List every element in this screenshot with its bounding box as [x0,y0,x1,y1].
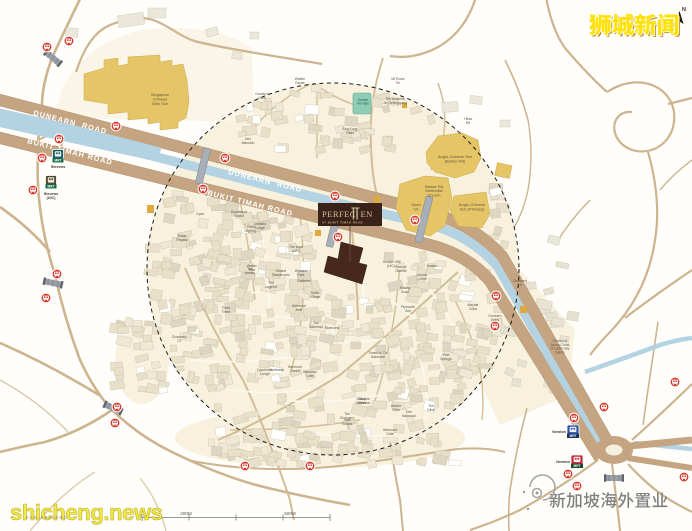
svg-text:Avalon: Avalon [427,264,437,268]
svg-text:SingaporeChineseGirls Sch: SingaporeChineseGirls Sch [151,92,170,106]
svg-text:WattenEstate: WattenEstate [295,77,306,85]
svg-text:TheOlive: TheOlive [427,404,435,412]
svg-text:Cyan: Cyan [196,212,204,216]
svg-text:Anglo-ChineseSch (Primary): Anglo-ChineseSch (Primary) [459,202,486,212]
svg-text:Stevens: Stevens [51,165,66,169]
svg-text:GardenHm Apts: GardenHm Apts [357,98,369,106]
svg-text:FirenzeGrande: FirenzeGrande [395,265,406,273]
svg-text:Newton: Newton [552,430,566,434]
svg-text:Newton: Newton [556,460,570,464]
svg-text:K C B - S E A L E R D: K C B - S E A L E R D [26,515,67,520]
svg-text:RobinRegalia: RobinRegalia [176,234,188,242]
svg-text:Galleries: Galleries [297,279,311,283]
svg-text:PERFEC: PERFEC [322,209,356,219]
svg-text:LincolnLodge: LincolnLodge [417,273,428,281]
svg-text:The AscentiaJln Gelenggang: The AscentiaJln Gelenggang [383,97,407,105]
svg-text:ChalseaLodge: ChalseaLodge [254,222,267,230]
svg-text:MRT: MRT [574,464,581,468]
svg-text:EN: EN [361,209,374,219]
svg-text:MRT: MRT [570,434,577,438]
svg-text:Montview: Montview [325,326,340,330]
svg-text:SarkiesMansion: SarkiesMansion [358,397,371,405]
svg-text:200M: 200M [180,511,192,516]
svg-text:ThreeTrees: ThreeTrees [222,306,231,314]
svg-text:shicheng.news: shicheng.news [10,500,163,525]
svg-text:500M: 500M [284,511,296,516]
svg-text:AT BUKIT TIMAH ROAD: AT BUKIT TIMAH ROAD [322,221,363,225]
svg-text:RobinVillage: RobinVillage [310,291,320,299]
svg-text:MRT: MRT [48,185,55,189]
svg-text:KhiangGuan: KhiangGuan [400,286,411,294]
svg-text:N: N [682,7,686,13]
